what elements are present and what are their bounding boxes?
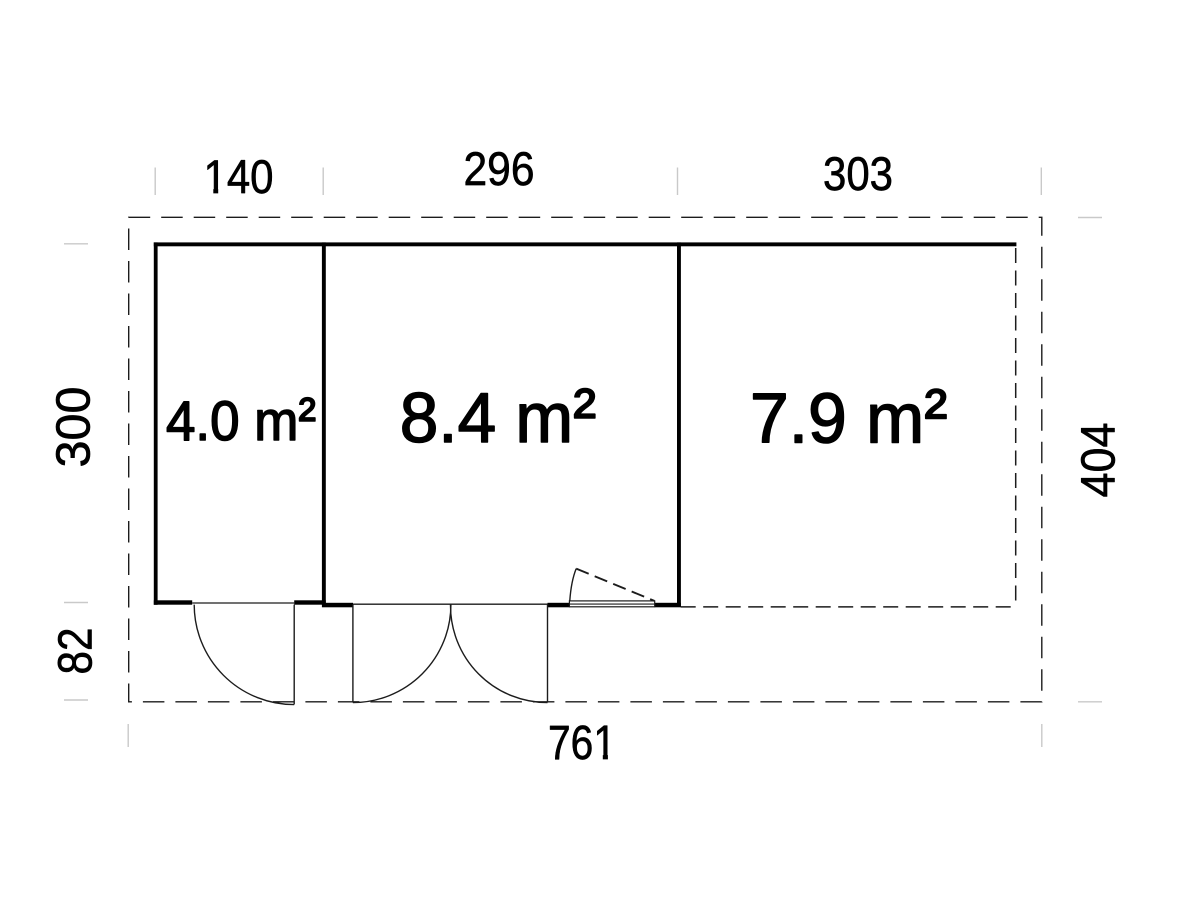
svg-text:300: 300 [47, 387, 101, 468]
svg-text:4.0 m²: 4.0 m² [166, 386, 316, 453]
svg-text:404: 404 [1072, 423, 1126, 498]
svg-text:8.4 m²: 8.4 m² [400, 374, 597, 458]
svg-text:303: 303 [823, 148, 893, 201]
svg-text:7.9 m²: 7.9 m² [750, 374, 948, 458]
svg-text:82: 82 [49, 628, 103, 675]
svg-text:761: 761 [548, 716, 616, 770]
svg-text:140: 140 [204, 151, 274, 204]
svg-text:296: 296 [464, 143, 535, 196]
